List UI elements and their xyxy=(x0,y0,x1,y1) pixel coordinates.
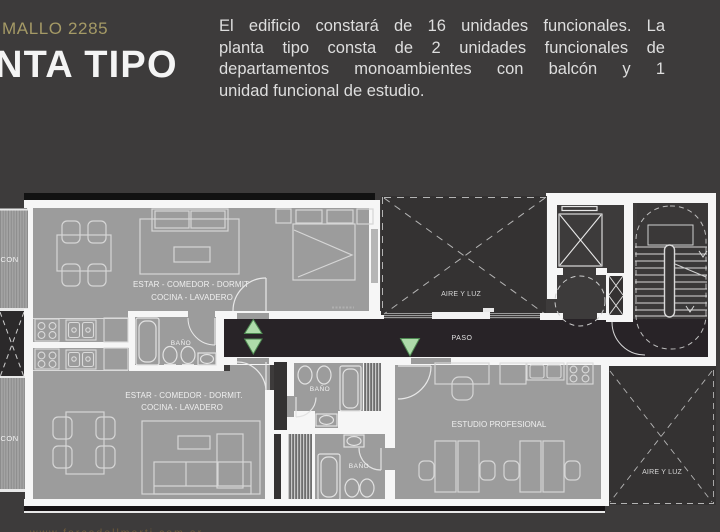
svg-text:PASO: PASO xyxy=(452,335,473,342)
svg-text:AIRE Y LUZ: AIRE Y LUZ xyxy=(642,469,682,476)
svg-text:AIRE Y LUZ: AIRE Y LUZ xyxy=(441,291,481,298)
svg-text:BAÑO: BAÑO xyxy=(349,461,369,470)
svg-text:ESTAR - COMEDOR - DORMIT.: ESTAR - COMEDOR - DORMIT. xyxy=(125,391,242,400)
svg-text:ESTUDIO PROFESIONAL: ESTUDIO PROFESIONAL xyxy=(452,420,547,429)
svg-text:ESTAR - COMEDOR - DORMIT: ESTAR - COMEDOR - DORMIT xyxy=(133,280,249,289)
svg-text:BAÑO: BAÑO xyxy=(310,384,330,393)
svg-text:COCINA - LAVADERO: COCINA - LAVADERO xyxy=(151,293,233,302)
svg-text:BAÑO: BAÑO xyxy=(171,338,191,347)
svg-text:CON: CON xyxy=(1,434,19,443)
svg-text:COCINA - LAVADERO: COCINA - LAVADERO xyxy=(141,403,223,412)
svg-text:CON: CON xyxy=(1,255,19,264)
